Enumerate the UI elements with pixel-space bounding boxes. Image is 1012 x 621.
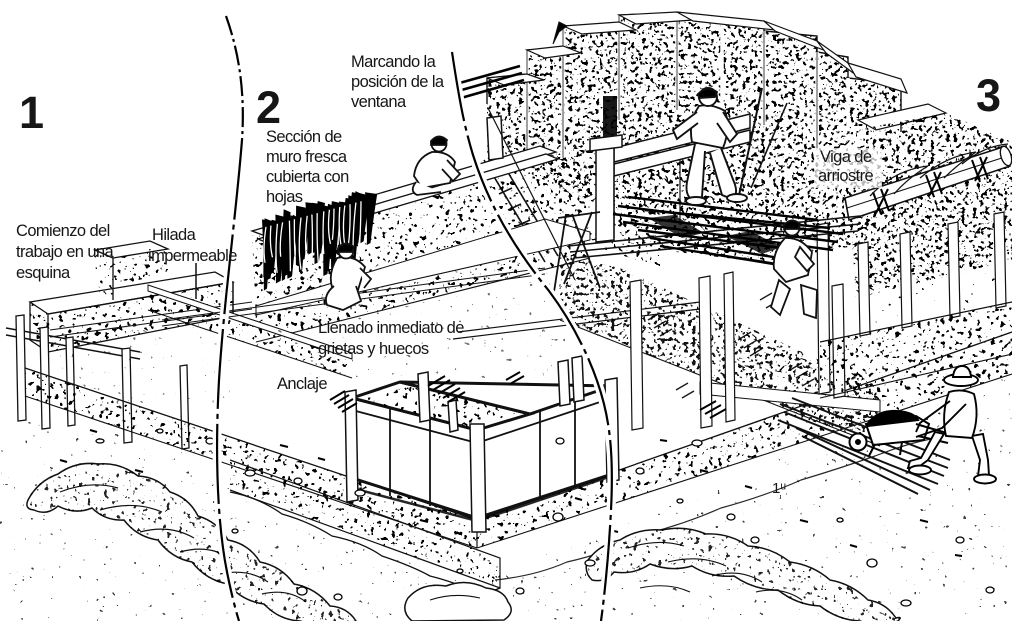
svg-text:muro fresca: muro fresca: [266, 148, 348, 166]
svg-text:1: 1: [19, 87, 44, 138]
svg-text:arriostre: arriostre: [818, 167, 874, 185]
svg-text:trabajo en una: trabajo en una: [16, 243, 115, 261]
svg-text:Hilada: Hilada: [152, 226, 197, 244]
svg-text:posición de la: posición de la: [351, 73, 445, 91]
svg-text:grietas y huecos: grietas y huecos: [318, 340, 429, 358]
svg-text:Llenado inmediato de: Llenado inmediato de: [318, 319, 464, 337]
svg-text:3: 3: [976, 70, 1001, 121]
svg-text:cubierta con: cubierta con: [266, 168, 349, 186]
svg-text:Viga de: Viga de: [820, 148, 872, 166]
svg-text:Comienzo del: Comienzo del: [16, 222, 110, 240]
svg-text:esquina: esquina: [16, 264, 71, 282]
svg-text:impermeable: impermeable: [148, 247, 237, 265]
svg-text:Marcando la: Marcando la: [351, 53, 437, 71]
svg-text:hojas: hojas: [266, 188, 303, 206]
svg-text:Sección de: Sección de: [266, 128, 342, 146]
svg-text:2: 2: [256, 82, 281, 133]
svg-text:Anclaje: Anclaje: [277, 375, 327, 393]
svg-text:1ᵘ: 1ᵘ: [772, 480, 786, 497]
svg-text:ventana: ventana: [351, 93, 407, 111]
